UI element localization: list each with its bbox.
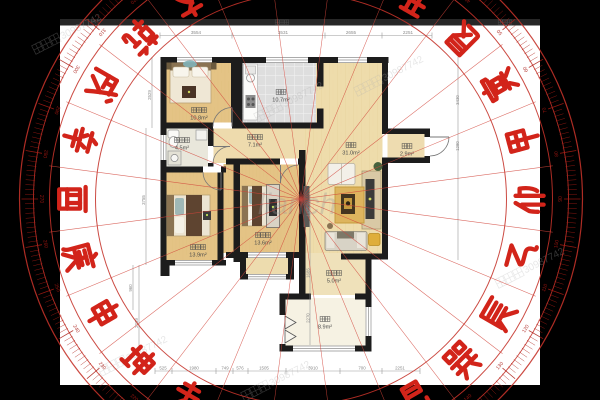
- svg-text:2251: 2251: [403, 30, 414, 35]
- svg-text:2529: 2529: [147, 90, 152, 100]
- svg-text:2270: 2270: [306, 313, 311, 323]
- svg-text:3755: 3755: [141, 195, 146, 205]
- svg-text:1280: 1280: [455, 141, 460, 151]
- svg-text:270: 270: [38, 195, 44, 204]
- svg-text:525: 525: [159, 366, 167, 371]
- svg-text:13.6m²: 13.6m²: [254, 241, 272, 247]
- svg-text:13.9m²: 13.9m²: [189, 253, 207, 259]
- svg-text:lianch: lianch: [258, 188, 336, 221]
- svg-text:2655: 2655: [346, 30, 357, 35]
- svg-text:4.5m²: 4.5m²: [175, 146, 189, 152]
- svg-text:1980: 1980: [189, 366, 199, 371]
- svg-text:960: 960: [128, 284, 133, 292]
- svg-text:3554: 3554: [191, 30, 202, 35]
- svg-text:576: 576: [236, 366, 244, 371]
- svg-text:700: 700: [358, 366, 366, 371]
- svg-text:749: 749: [221, 366, 229, 371]
- svg-text:1685: 1685: [306, 268, 311, 278]
- svg-text:2.9m²: 2.9m²: [400, 152, 414, 158]
- svg-text:1505: 1505: [259, 366, 269, 371]
- svg-text:2251: 2251: [395, 366, 405, 371]
- svg-text:3430: 3430: [455, 95, 460, 105]
- svg-text:90: 90: [558, 196, 564, 202]
- svg-text:8.9m²: 8.9m²: [318, 325, 332, 331]
